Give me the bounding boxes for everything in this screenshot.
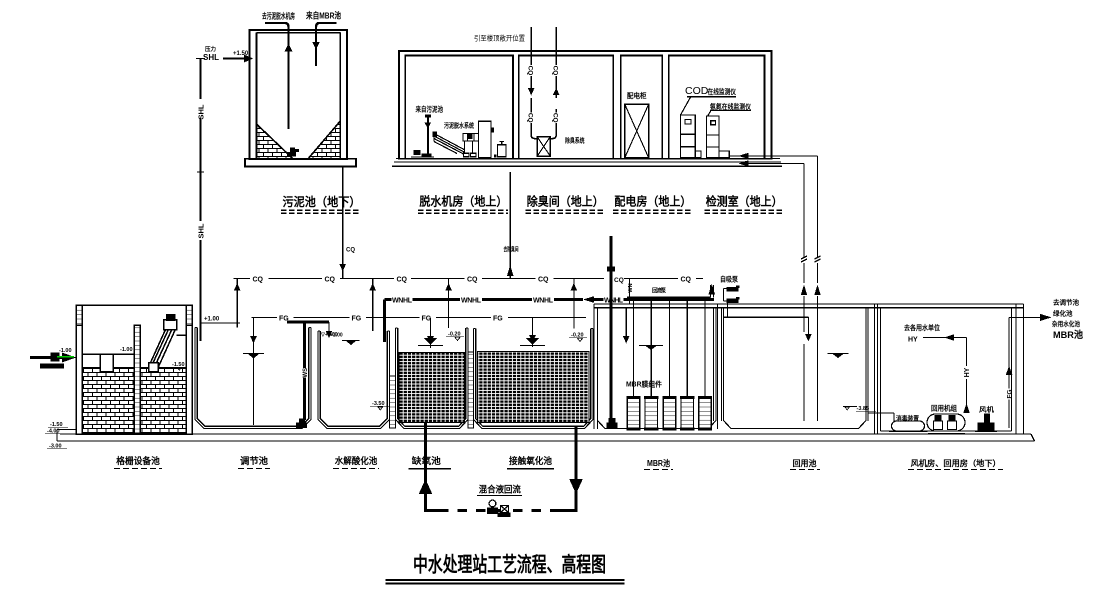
svg-text:FG: FG [352,315,362,322]
svg-text:-1.00: -1.00 [59,348,72,354]
svg-text:脱水机房（地上）: 脱水机房（地上） [419,194,507,209]
svg-text:MBR池: MBR池 [1053,329,1083,341]
svg-text:污泥池（地下）: 污泥池（地下） [283,194,361,209]
svg-text:+1.50: +1.50 [233,51,249,57]
svg-text:WNHL: WNHL [461,298,482,305]
svg-text:MBR池: MBR池 [647,458,670,468]
svg-text:CQ: CQ [552,113,559,123]
svg-text:-1.00: -1.00 [120,347,133,353]
svg-text:混合液回流: 混合液回流 [479,484,521,495]
svg-text:WN: WN [628,283,634,292]
svg-text:绿化池: 绿化池 [1053,309,1073,318]
svg-text:来自污泥池: 来自污泥池 [415,105,443,114]
svg-text:除臭间（地上）: 除臭间（地上） [527,194,604,209]
svg-text:在线监测仪: 在线监测仪 [708,87,737,96]
svg-text:污泥脱水系统: 污泥脱水系统 [444,121,474,130]
svg-text:HY: HY [908,337,918,344]
svg-text:CQ: CQ [346,248,355,254]
svg-text:风机: 风机 [979,405,995,414]
svg-text:去除臭间: 去除臭间 [504,246,519,254]
svg-text:CQ: CQ [552,66,559,76]
svg-text:FG: FG [422,315,432,322]
svg-text:回流泵: 回流泵 [652,287,666,295]
svg-text:COD: COD [685,85,709,97]
svg-text:自吸泵: 自吸泵 [720,275,738,284]
svg-text:来自MBR池: 来自MBR池 [305,11,341,21]
svg-text:CQ: CQ [253,276,264,283]
svg-text:接触氧化池: 接触氧化池 [509,455,552,466]
svg-text:格栅设备池: 格栅设备池 [116,455,160,466]
svg-text:除臭系统: 除臭系统 [565,136,585,145]
svg-text:-3.85: -3.85 [857,406,870,412]
svg-text:▽+1.00: ▽+1.00 [320,332,338,338]
svg-text:CQ: CQ [527,66,534,76]
svg-text:配电柜: 配电柜 [627,91,647,100]
svg-text:去污泥脱水机房: 去污泥脱水机房 [262,11,295,21]
svg-text:FG: FG [493,315,503,322]
svg-text:WNHL: WNHL [392,298,413,305]
svg-text:引至楼顶敞开位置: 引至楼顶敞开位置 [474,34,525,43]
svg-text:压力: 压力 [205,45,217,53]
svg-text:去调节池: 去调节池 [1053,298,1080,307]
svg-text:FG: FG [1007,389,1014,398]
svg-text:检测室（地上）: 检测室（地上） [706,194,783,209]
svg-text:CQ: CQ [325,276,336,283]
svg-text:消毒装置: 消毒装置 [896,414,919,423]
svg-text:CQ: CQ [397,276,408,283]
svg-text:调节池: 调节池 [240,455,268,466]
svg-text:CQ: CQ [681,276,692,283]
svg-text:WS: WS [303,368,309,378]
svg-text:水解酸化池: 水解酸化池 [335,455,378,466]
svg-text:氨氮在线监测仪: 氨氮在线监测仪 [710,102,752,111]
svg-text:WNHL: WNHL [533,298,554,305]
svg-text:HY: HY [964,367,971,377]
svg-text:配电房（地上）: 配电房（地上） [614,194,691,209]
svg-text:中水处理站工艺流程、高程图: 中水处理站工艺流程、高程图 [413,553,606,577]
svg-text:SHL: SHL [197,104,206,119]
svg-text:SHL: SHL [203,53,219,62]
svg-text:风机房、回用房（地下）: 风机房、回用房（地下） [911,458,1001,468]
svg-text:CQ: CQ [614,277,624,284]
svg-text:回用池: 回用池 [793,458,817,468]
svg-text:杂用水化池: 杂用水化池 [1052,319,1080,328]
svg-text:SHL: SHL [197,223,206,238]
svg-text:MBR膜组件: MBR膜组件 [626,380,662,389]
svg-text:CQ: CQ [467,276,478,283]
svg-text:CQ: CQ [538,276,549,283]
svg-text:回用机组: 回用机组 [931,404,957,413]
svg-text:去各用水单位: 去各用水单位 [904,323,940,332]
svg-text:CQ: CQ [527,113,534,123]
svg-text:+1.00: +1.00 [204,317,220,323]
